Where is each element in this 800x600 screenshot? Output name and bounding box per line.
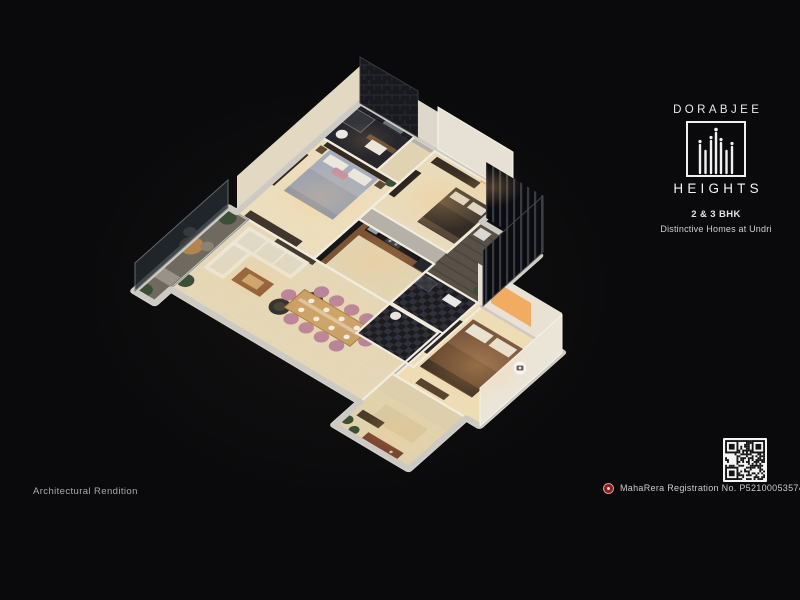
brand-name-top: DORABJEE (670, 104, 763, 116)
rera-badge-icon (603, 483, 614, 494)
brand-logo-mark (686, 121, 746, 177)
brand-block: DORABJEE HEIGHTS 2 & 3 BHK Distinct (646, 104, 786, 234)
brand-offering: 2 & 3 BHK (691, 209, 741, 220)
rera-registration-text: MahaRera Registration No. P52100053574 (620, 483, 800, 493)
poster-canvas: DORABJEE HEIGHTS 2 & 3 BHK Distinct (0, 0, 800, 600)
brand-name-bottom: HEIGHTS (669, 181, 763, 196)
brand-tagline: Distinctive Homes at Undri (660, 224, 771, 234)
floorplan-render (0, 0, 800, 600)
rera-line: MahaRera Registration No. P52100053574 (603, 482, 800, 494)
rendition-note: Architectural Rendition (33, 486, 138, 497)
watermark-icon (514, 362, 527, 375)
qr-code (723, 438, 767, 482)
